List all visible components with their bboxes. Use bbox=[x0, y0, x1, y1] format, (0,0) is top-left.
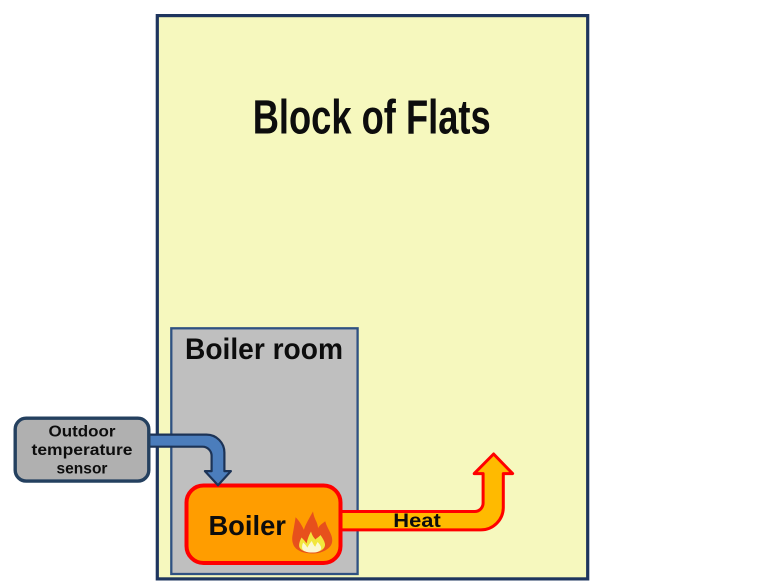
svg-text:Boiler: Boiler bbox=[208, 510, 286, 541]
svg-text:sensor: sensor bbox=[57, 460, 108, 477]
svg-text:Heat: Heat bbox=[393, 510, 441, 532]
svg-text:Boiler room: Boiler room bbox=[185, 333, 343, 366]
svg-text:temperature: temperature bbox=[32, 442, 133, 459]
svg-text:Block of Flats: Block of Flats bbox=[253, 91, 491, 145]
svg-text:Outdoor: Outdoor bbox=[49, 423, 116, 440]
